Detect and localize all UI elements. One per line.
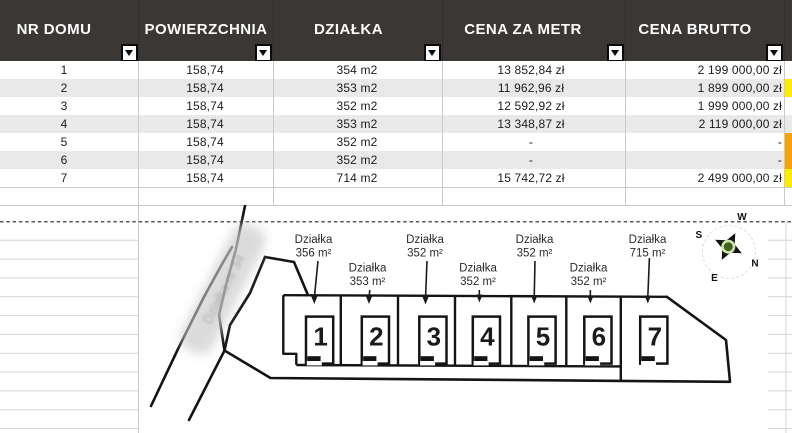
svg-text:353 m²: 353 m² <box>350 276 386 288</box>
svg-text:N: N <box>751 259 758 270</box>
svg-text:352 m²: 352 m² <box>571 276 607 288</box>
svg-text:W: W <box>737 212 747 223</box>
svg-text:352 m²: 352 m² <box>407 248 443 260</box>
svg-text:Działka: Działka <box>349 263 387 275</box>
svg-text:Działka: Działka <box>406 234 444 246</box>
svg-text:356 m²: 356 m² <box>296 248 332 260</box>
svg-text:3: 3 <box>427 322 441 352</box>
svg-text:Działka: Działka <box>295 234 333 246</box>
svg-text:Działka: Działka <box>629 234 667 246</box>
svg-text:E: E <box>711 273 718 284</box>
svg-text:352 m²: 352 m² <box>460 276 496 288</box>
svg-text:2: 2 <box>369 322 383 352</box>
svg-text:1: 1 <box>313 322 327 352</box>
svg-text:Działka: Działka <box>516 234 554 246</box>
svg-text:715 m²: 715 m² <box>630 248 666 260</box>
svg-text:Działka: Działka <box>570 263 608 275</box>
svg-text:4: 4 <box>480 322 495 352</box>
svg-text:5: 5 <box>536 322 550 352</box>
svg-text:7: 7 <box>648 322 662 352</box>
svg-text:Działka: Działka <box>459 263 497 275</box>
svg-text:352 m²: 352 m² <box>517 248 553 260</box>
svg-text:S: S <box>695 230 702 241</box>
svg-text:6: 6 <box>592 322 606 352</box>
